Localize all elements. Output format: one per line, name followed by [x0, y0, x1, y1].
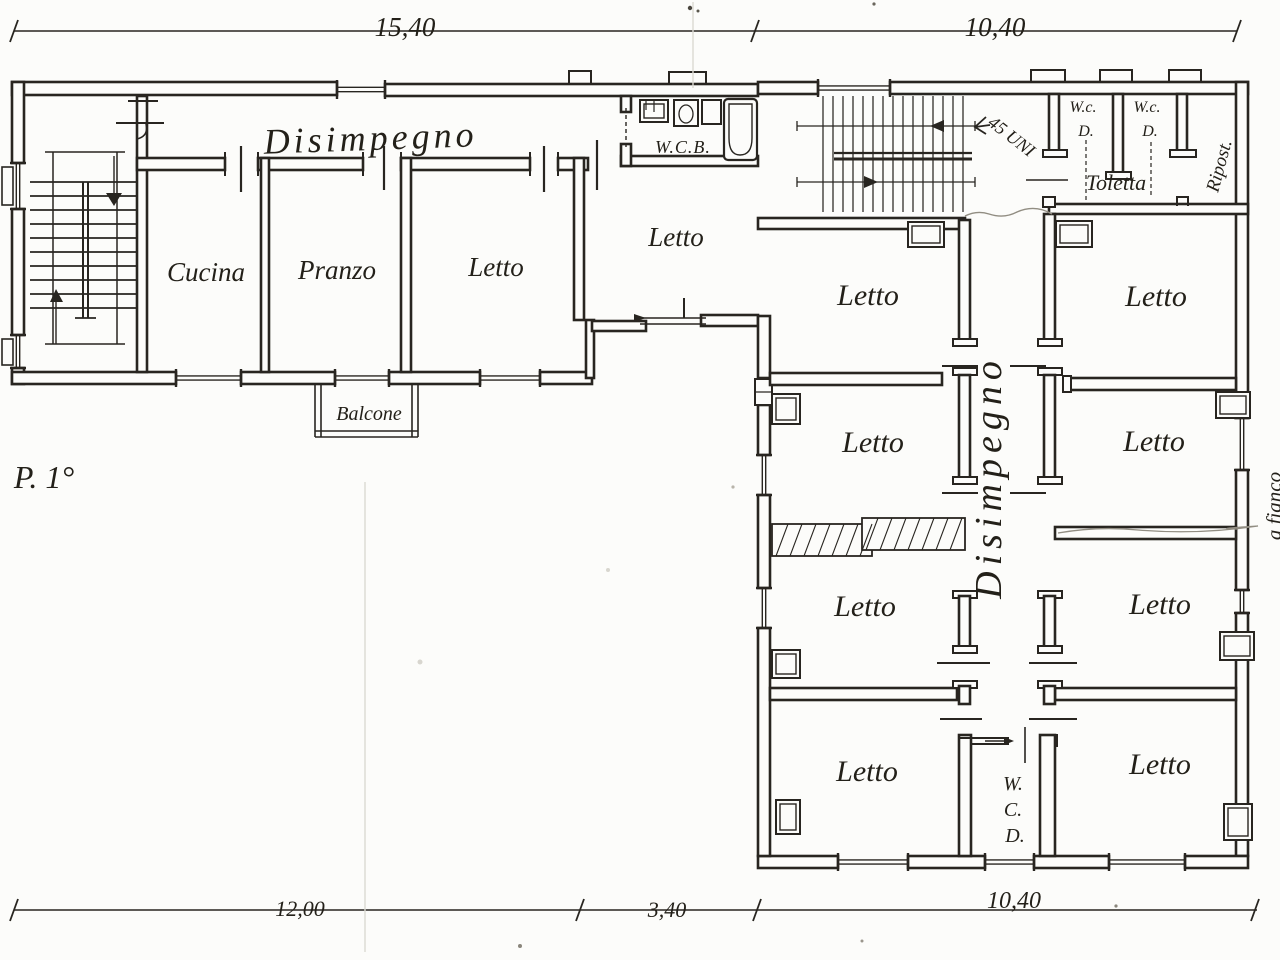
svg-text:W.C.B.: W.C.B. — [655, 137, 711, 157]
svg-text:W.c.: W.c. — [1134, 99, 1161, 116]
svg-text:Letto: Letto — [1124, 280, 1187, 313]
svg-text:Balcone: Balcone — [336, 403, 402, 425]
svg-text:Toletta: Toletta — [1086, 170, 1146, 195]
svg-text:15,40: 15,40 — [375, 12, 436, 42]
svg-text:10,40: 10,40 — [965, 12, 1026, 42]
svg-text:D.: D. — [1077, 123, 1094, 140]
svg-text:Letto: Letto — [647, 222, 704, 252]
svg-text:10,40: 10,40 — [987, 888, 1041, 914]
svg-text:C.: C. — [1004, 799, 1022, 821]
svg-text:Disimpegno: Disimpegno — [262, 114, 478, 161]
svg-text:Letto: Letto — [1128, 588, 1191, 621]
svg-text:Letto: Letto — [833, 590, 896, 623]
svg-text:3,40: 3,40 — [647, 897, 687, 922]
svg-text:12,00: 12,00 — [275, 896, 325, 921]
svg-text:W.: W. — [1003, 773, 1023, 795]
svg-text:Letto: Letto — [467, 252, 524, 282]
svg-text:Pranzo: Pranzo — [297, 255, 376, 285]
svg-text:D.: D. — [1141, 123, 1158, 140]
svg-text:a fianco: a fianco — [1262, 472, 1280, 540]
svg-text:Letto: Letto — [1128, 748, 1191, 781]
svg-text:Disimpegno: Disimpegno — [968, 355, 1010, 600]
svg-text:Cucina: Cucina — [167, 257, 245, 287]
svg-text:Letto: Letto — [836, 279, 899, 312]
svg-text:Letto: Letto — [835, 755, 898, 788]
svg-text:D.: D. — [1004, 825, 1024, 847]
svg-text:P. 1°: P. 1° — [13, 459, 74, 495]
svg-text:W.c.: W.c. — [1070, 99, 1097, 116]
svg-text:Letto: Letto — [841, 426, 904, 459]
svg-text:Letto: Letto — [1122, 425, 1185, 458]
